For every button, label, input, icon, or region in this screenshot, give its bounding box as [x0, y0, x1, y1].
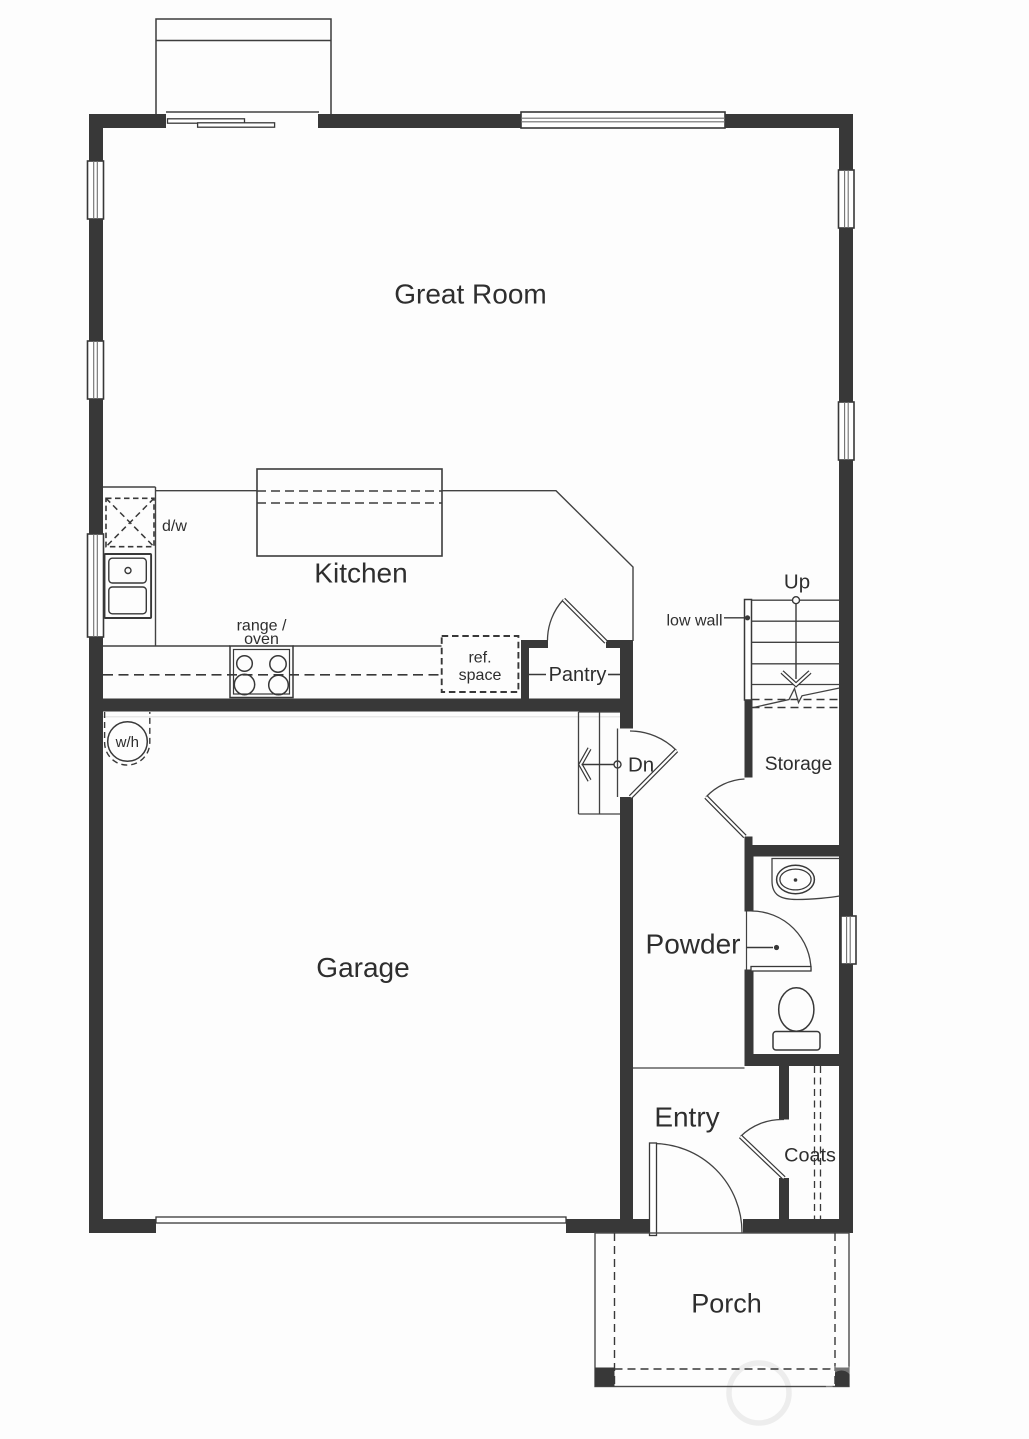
svg-text:Entry: Entry	[654, 1102, 719, 1133]
svg-text:Garage: Garage	[316, 952, 409, 983]
svg-text:d/w: d/w	[162, 518, 187, 535]
svg-text:Up: Up	[784, 571, 810, 594]
svg-text:space: space	[459, 667, 502, 684]
svg-text:oven: oven	[244, 631, 279, 648]
svg-text:low wall: low wall	[666, 613, 722, 630]
svg-text:Pantry: Pantry	[549, 664, 607, 686]
svg-text:Storage: Storage	[765, 754, 833, 775]
svg-text:Powder: Powder	[646, 929, 741, 960]
svg-text:Kitchen: Kitchen	[314, 558, 407, 589]
svg-text:Porch: Porch	[691, 1289, 762, 1319]
svg-text:w/h: w/h	[115, 734, 139, 751]
svg-text:Great Room: Great Room	[394, 279, 547, 310]
svg-text:ref.: ref.	[468, 650, 491, 667]
svg-text:Coats: Coats	[784, 1145, 836, 1167]
svg-text:Dn: Dn	[628, 754, 654, 777]
